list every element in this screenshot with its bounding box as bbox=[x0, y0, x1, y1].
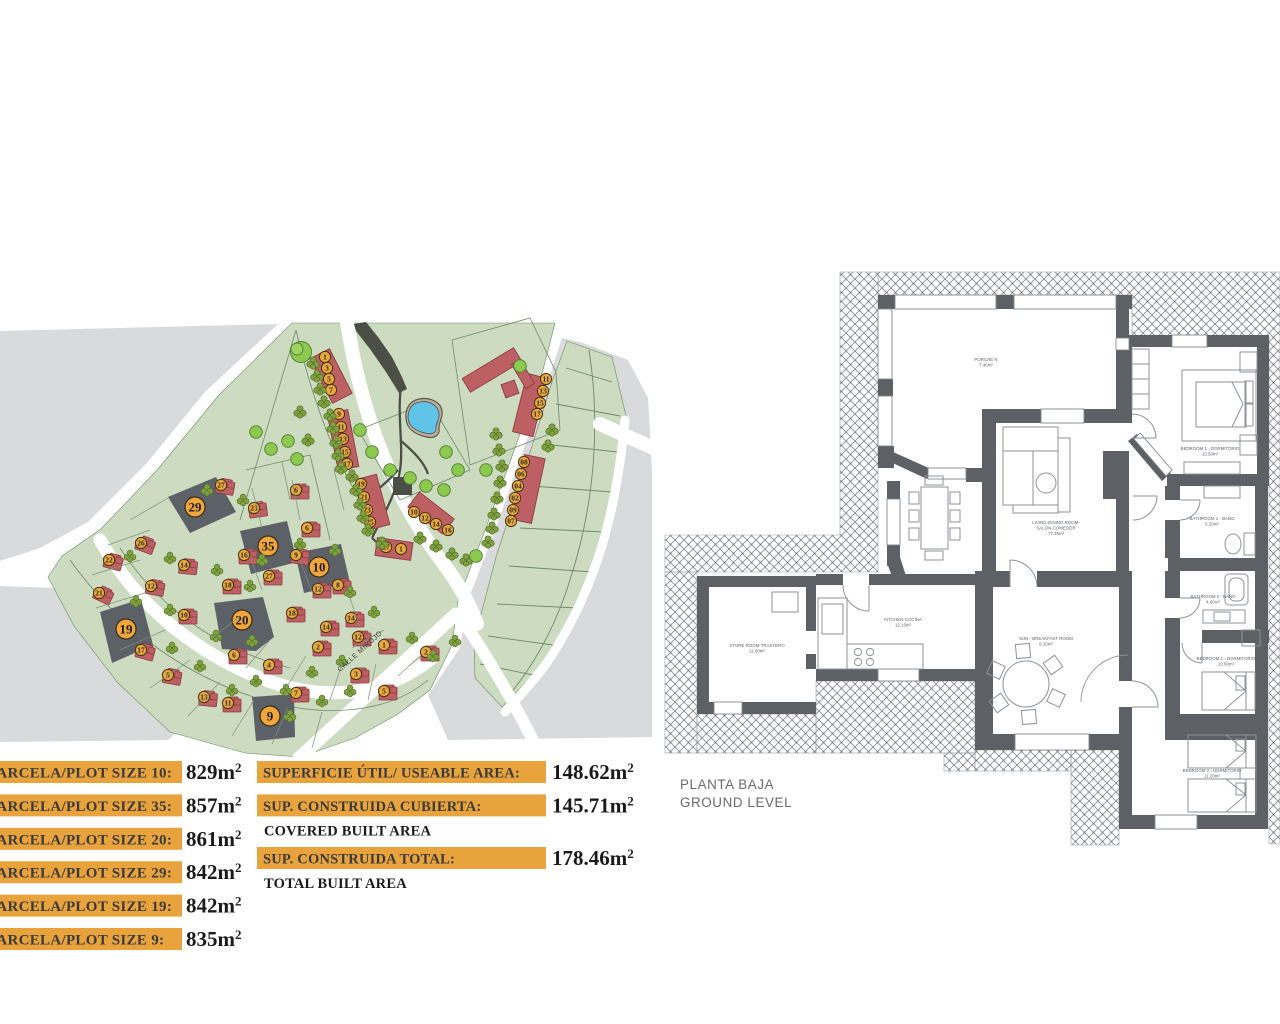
svg-text:LIVING-DINING ROOM-: LIVING-DINING ROOM- bbox=[1032, 520, 1080, 525]
svg-text:1: 1 bbox=[323, 352, 327, 361]
svg-text:10.60m²: 10.60m² bbox=[1218, 661, 1235, 666]
svg-text:13: 13 bbox=[200, 692, 208, 701]
svg-text:3: 3 bbox=[354, 669, 358, 678]
svg-text:178.46m2: 178.46m2 bbox=[552, 846, 634, 870]
svg-text:16: 16 bbox=[240, 550, 248, 559]
svg-text:BEDROOM 2 - DORMITORIO: BEDROOM 2 - DORMITORIO bbox=[1197, 656, 1256, 661]
svg-text:PARCELA/PLOT SIZE 19:: PARCELA/PLOT SIZE 19: bbox=[0, 899, 172, 915]
svg-text:10: 10 bbox=[180, 610, 188, 619]
svg-text:5: 5 bbox=[382, 686, 386, 695]
svg-text:2: 2 bbox=[424, 647, 428, 656]
svg-text:9: 9 bbox=[294, 550, 298, 559]
svg-text:9: 9 bbox=[267, 709, 274, 724]
svg-text:842m2: 842m2 bbox=[186, 860, 242, 884]
svg-text:27: 27 bbox=[265, 571, 273, 580]
svg-text:SUP. CONSTRUIDA TOTAL:: SUP. CONSTRUIDA TOTAL: bbox=[263, 852, 455, 868]
svg-text:20: 20 bbox=[236, 613, 249, 628]
svg-text:18: 18 bbox=[288, 608, 296, 617]
svg-text:GROUND LEVEL: GROUND LEVEL bbox=[680, 795, 792, 810]
svg-text:SALON-COMEDOR: SALON-COMEDOR bbox=[1036, 525, 1075, 530]
svg-text:857m2: 857m2 bbox=[186, 793, 242, 817]
svg-text:TOTAL BUILT AREA: TOTAL BUILT AREA bbox=[264, 876, 407, 892]
svg-text:BEDROOM 3 - DORMITORIO: BEDROOM 3 - DORMITORIO bbox=[1183, 768, 1242, 773]
svg-text:1: 1 bbox=[382, 640, 386, 649]
svg-text:29: 29 bbox=[189, 500, 203, 515]
svg-text:BEDROOM 1 - DORMITORIO: BEDROOM 1 - DORMITORIO bbox=[1181, 446, 1240, 451]
svg-text:PARCELA/PLOT SIZE 10:: PARCELA/PLOT SIZE 10: bbox=[0, 766, 172, 782]
svg-text:7: 7 bbox=[329, 385, 333, 394]
svg-text:3: 3 bbox=[325, 363, 329, 372]
svg-text:6: 6 bbox=[305, 523, 309, 532]
svg-text:15: 15 bbox=[536, 398, 544, 407]
svg-text:26: 26 bbox=[137, 538, 145, 547]
svg-text:09: 09 bbox=[509, 505, 517, 514]
svg-text:14: 14 bbox=[322, 622, 330, 631]
svg-text:KITCHEN-COCINA: KITCHEN-COCINA bbox=[884, 617, 922, 622]
svg-text:12: 12 bbox=[147, 581, 155, 590]
svg-text:BATHROOM 1 - BAÑO: BATHROOM 1 - BAÑO bbox=[1189, 516, 1235, 521]
svg-text:35: 35 bbox=[262, 539, 276, 554]
svg-text:07: 07 bbox=[507, 516, 515, 525]
svg-text:COVERED BUILT AREA: COVERED BUILT AREA bbox=[264, 823, 432, 839]
svg-text:13.50m²: 13.50m² bbox=[1202, 451, 1219, 456]
svg-text:17: 17 bbox=[137, 645, 145, 654]
svg-text:22: 22 bbox=[105, 555, 113, 564]
svg-text:SUN - BREAKFAST ROOM: SUN - BREAKFAST ROOM bbox=[1019, 636, 1073, 641]
svg-text:14: 14 bbox=[347, 613, 355, 622]
svg-text:9.10m²: 9.10m² bbox=[1039, 641, 1053, 646]
svg-text:PLANTA BAJA: PLANTA BAJA bbox=[680, 777, 774, 792]
svg-text:14: 14 bbox=[432, 519, 440, 528]
svg-text:5.20m²: 5.20m² bbox=[1205, 521, 1219, 526]
svg-text:02: 02 bbox=[511, 493, 519, 502]
svg-text:19: 19 bbox=[120, 622, 134, 637]
svg-text:1: 1 bbox=[399, 544, 403, 553]
svg-text:PARCELA/PLOT SIZE 29:: PARCELA/PLOT SIZE 29: bbox=[0, 866, 172, 882]
svg-text:7: 7 bbox=[294, 688, 298, 697]
svg-text:6: 6 bbox=[232, 650, 236, 659]
svg-text:06: 06 bbox=[517, 469, 525, 478]
svg-text:PORCHE N: PORCHE N bbox=[974, 357, 997, 362]
svg-text:12: 12 bbox=[421, 513, 429, 522]
svg-text:17: 17 bbox=[533, 409, 541, 418]
svg-text:04: 04 bbox=[514, 481, 522, 490]
svg-text:18: 18 bbox=[224, 580, 232, 589]
svg-text:2: 2 bbox=[316, 642, 320, 651]
svg-text:12: 12 bbox=[314, 584, 322, 593]
svg-text:SUP. CONSTRUIDA CUBIERTA:: SUP. CONSTRUIDA CUBIERTA: bbox=[263, 799, 481, 815]
svg-text:835m2: 835m2 bbox=[186, 927, 242, 951]
svg-text:145.71m2: 145.71m2 bbox=[552, 793, 634, 817]
svg-text:SUPERFICIE ÚTIL/ USEABLE AREA:: SUPERFICIE ÚTIL/ USEABLE AREA: bbox=[263, 765, 520, 782]
svg-text:7.46m²: 7.46m² bbox=[979, 362, 993, 367]
svg-text:14: 14 bbox=[180, 560, 188, 569]
svg-text:11.20m²: 11.20m² bbox=[1204, 773, 1220, 778]
svg-text:PARCELA/PLOT SIZE 9:: PARCELA/PLOT SIZE 9: bbox=[0, 933, 164, 949]
svg-text:BATHROOM 2 - BAÑO: BATHROOM 2 - BAÑO bbox=[1190, 594, 1236, 599]
svg-text:4.60m²: 4.60m² bbox=[1206, 599, 1220, 604]
svg-text:10: 10 bbox=[410, 507, 418, 516]
svg-text:27: 27 bbox=[217, 480, 225, 489]
svg-text:77.35m²: 77.35m² bbox=[1048, 531, 1065, 536]
svg-text:13: 13 bbox=[539, 386, 547, 395]
svg-text:PARCELA/PLOT SIZE 35:: PARCELA/PLOT SIZE 35: bbox=[0, 799, 172, 815]
svg-text:21: 21 bbox=[95, 588, 103, 597]
svg-text:4: 4 bbox=[267, 660, 271, 669]
svg-text:148.62m2: 148.62m2 bbox=[552, 760, 634, 784]
svg-text:5: 5 bbox=[327, 374, 331, 383]
svg-text:11: 11 bbox=[542, 374, 549, 383]
svg-text:08: 08 bbox=[520, 457, 528, 466]
svg-text:12.15m²: 12.15m² bbox=[895, 622, 912, 627]
svg-text:8: 8 bbox=[336, 580, 340, 589]
svg-text:16: 16 bbox=[444, 525, 452, 534]
svg-text:842m2: 842m2 bbox=[186, 894, 242, 918]
svg-text:11.00m²: 11.00m² bbox=[749, 648, 765, 653]
svg-text:11: 11 bbox=[224, 698, 231, 707]
svg-text:10: 10 bbox=[313, 560, 326, 575]
svg-text:PARCELA/PLOT SIZE 20:: PARCELA/PLOT SIZE 20: bbox=[0, 832, 172, 848]
svg-text:STORE ROOM-TRASTERO: STORE ROOM-TRASTERO bbox=[729, 643, 785, 648]
svg-text:9: 9 bbox=[337, 409, 341, 418]
svg-text:12: 12 bbox=[354, 632, 362, 641]
svg-text:829m2: 829m2 bbox=[186, 760, 242, 784]
svg-text:861m2: 861m2 bbox=[186, 827, 242, 851]
